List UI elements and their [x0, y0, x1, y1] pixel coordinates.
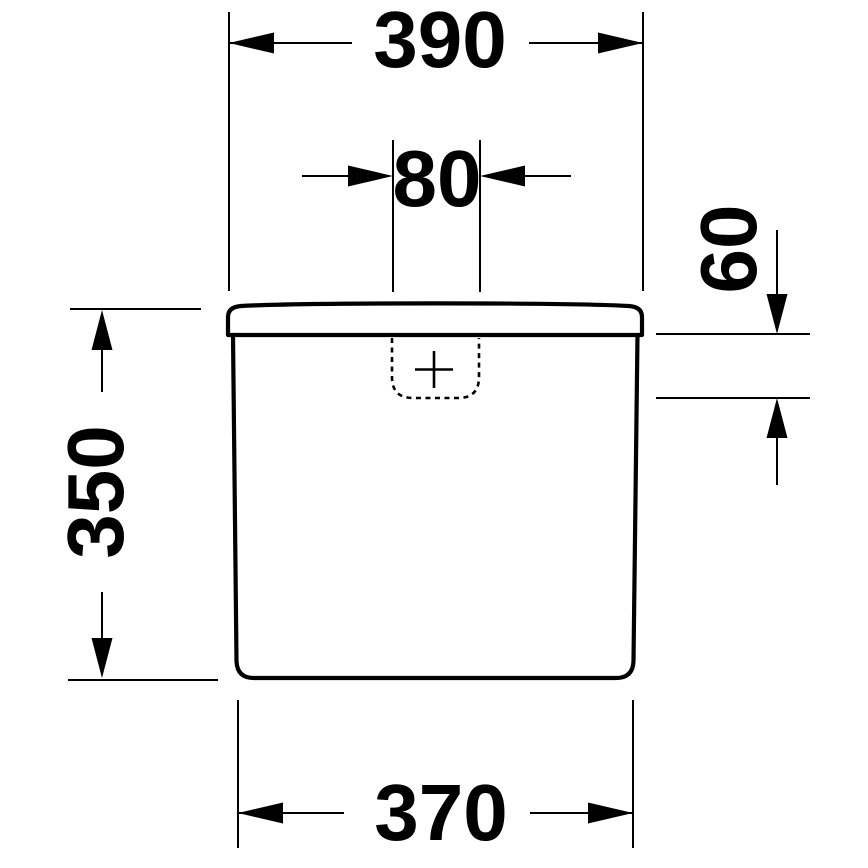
arrow-down-icon — [767, 294, 788, 334]
dim-body-height-label: 350 — [51, 425, 140, 558]
cistern-outline-group — [228, 303, 642, 678]
arrow-up-icon — [92, 310, 113, 350]
dimension-body-height: 350 — [51, 309, 218, 680]
flush-button-dashed-outline — [392, 338, 479, 398]
arrow-up-icon — [767, 398, 788, 438]
dimension-base-width: 370 — [238, 700, 633, 857]
arrow-left-icon — [480, 166, 525, 187]
dim-base-width-label: 370 — [374, 768, 507, 857]
dimension-button-recess-width: 80 — [302, 134, 571, 292]
dim-lid-to-recess-depth-label: 60 — [684, 205, 773, 294]
arrow-right-icon — [598, 33, 643, 54]
arrow-right-icon — [588, 803, 633, 824]
drawing-canvas: 390 80 60 — [0, 0, 868, 868]
arrow-right-icon — [348, 166, 393, 187]
technical-drawing: 390 80 60 — [0, 0, 868, 868]
center-cross-icon — [415, 351, 453, 388]
dim-button-recess-width-label: 80 — [393, 134, 482, 223]
arrow-left-icon — [229, 33, 274, 54]
arrow-down-icon — [92, 638, 113, 678]
dimension-lid-to-recess-depth: 60 — [656, 205, 810, 485]
dim-overall-width-label: 390 — [373, 0, 506, 84]
arrow-left-icon — [238, 803, 283, 824]
cistern-lid-outline — [228, 303, 642, 335]
